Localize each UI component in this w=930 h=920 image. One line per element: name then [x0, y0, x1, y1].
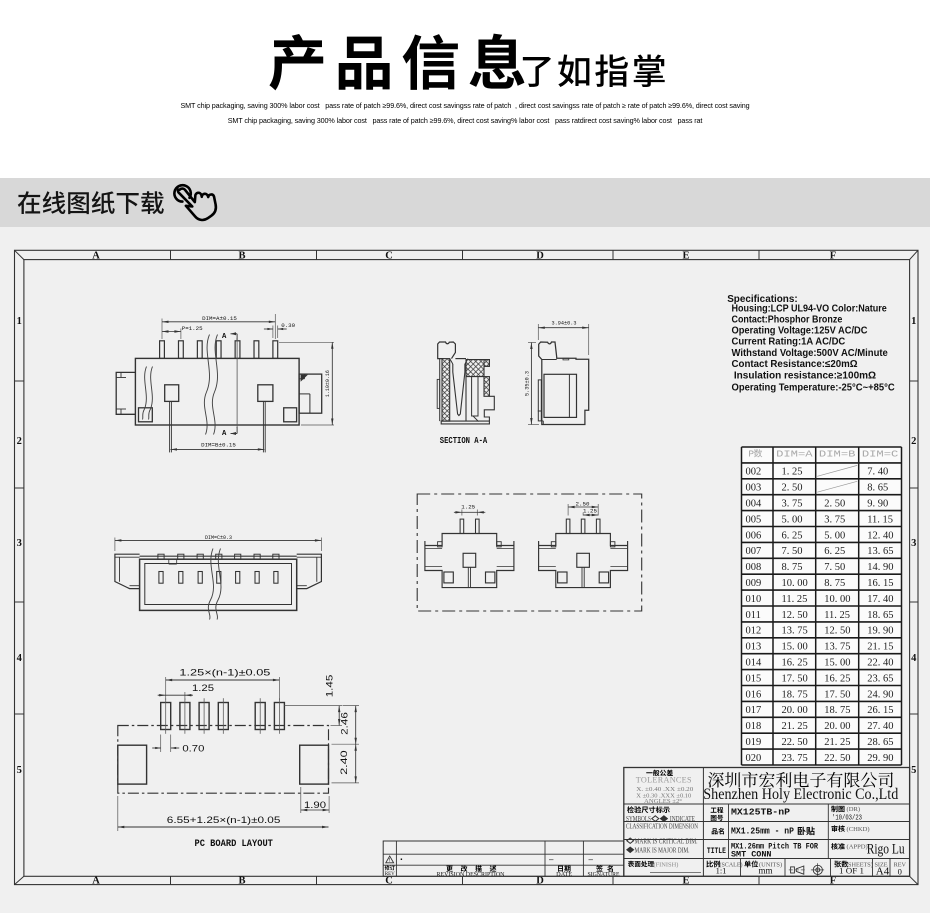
- svg-text:21. 25: 21. 25: [824, 737, 850, 748]
- svg-text:15. 00: 15. 00: [782, 642, 808, 653]
- svg-text:11. 25: 11. 25: [824, 610, 850, 621]
- svg-text:002: 002: [746, 467, 762, 478]
- svg-text:2: 2: [911, 436, 916, 447]
- svg-text:009: 009: [746, 578, 762, 589]
- svg-text:3: 3: [911, 538, 916, 549]
- svg-text:0.30: 0.30: [281, 322, 295, 329]
- svg-text:1: 1: [17, 316, 22, 327]
- svg-text:020: 020: [746, 753, 762, 764]
- svg-text:E: E: [682, 250, 689, 261]
- svg-text:DIM=C: DIM=C: [862, 449, 899, 460]
- svg-text:23. 65: 23. 65: [867, 673, 893, 684]
- svg-text:13. 75: 13. 75: [782, 626, 808, 637]
- svg-text:0.70: 0.70: [182, 744, 204, 754]
- svg-text:A: A: [222, 333, 227, 341]
- svg-text:006: 006: [746, 530, 762, 541]
- svg-text:'10/03/23: '10/03/23: [832, 815, 862, 823]
- svg-text:24. 90: 24. 90: [867, 689, 893, 700]
- svg-text:2. 50: 2. 50: [782, 483, 803, 494]
- svg-text:Current Rating:1A AC/DC: Current Rating:1A AC/DC: [732, 337, 846, 348]
- svg-text:3. 75: 3. 75: [824, 514, 845, 525]
- svg-text:5: 5: [17, 765, 22, 776]
- svg-text:(APPD): (APPD): [847, 844, 868, 851]
- svg-text:SECTION A-A: SECTION A-A: [440, 435, 488, 446]
- svg-text:17. 40: 17. 40: [867, 594, 893, 605]
- svg-text:010: 010: [746, 594, 762, 605]
- svg-text:Shenzhen Holy Electronic Co.,L: Shenzhen Holy Electronic Co.,Ltd: [703, 786, 898, 803]
- svg-text:20. 00: 20. 00: [824, 721, 850, 732]
- svg-text:8. 75: 8. 75: [824, 578, 845, 589]
- svg-text:10. 00: 10. 00: [824, 594, 850, 605]
- svg-text:15. 00: 15. 00: [824, 657, 850, 668]
- svg-text:DIM=C±0.3: DIM=C±0.3: [205, 534, 232, 541]
- svg-text:MX125TB-nP: MX125TB-nP: [731, 806, 790, 817]
- svg-text:16. 15: 16. 15: [867, 578, 893, 589]
- svg-text:18. 65: 18. 65: [867, 610, 893, 621]
- svg-text:19. 90: 19. 90: [867, 626, 893, 637]
- svg-text:TITLE: TITLE: [707, 847, 726, 856]
- svg-text:16. 25: 16. 25: [782, 657, 808, 668]
- svg-text:A: A: [92, 876, 100, 887]
- svg-text:D: D: [536, 250, 544, 261]
- svg-text:2: 2: [17, 436, 22, 447]
- svg-text:DIM=A±0.15: DIM=A±0.15: [202, 315, 237, 322]
- svg-text:DIM=B: DIM=B: [819, 449, 856, 460]
- svg-text:9. 90: 9. 90: [867, 498, 888, 509]
- svg-text:003: 003: [746, 483, 762, 494]
- svg-text:6.55+1.25×(n-1)±0.05: 6.55+1.25×(n-1)±0.05: [167, 815, 281, 825]
- svg-text:F: F: [830, 876, 836, 887]
- svg-text:005: 005: [746, 514, 762, 525]
- svg-text:(CHKD): (CHKD): [847, 826, 870, 833]
- svg-text:015: 015: [746, 673, 762, 684]
- svg-text:A4: A4: [876, 866, 890, 878]
- svg-text:C: C: [385, 250, 393, 261]
- svg-text:7. 50: 7. 50: [782, 546, 803, 557]
- svg-text:B: B: [238, 250, 245, 261]
- svg-text:1.10±0.16: 1.10±0.16: [324, 370, 331, 397]
- svg-text:18. 75: 18. 75: [782, 689, 808, 700]
- svg-text:5. 00: 5. 00: [824, 530, 845, 541]
- svg-text:21. 25: 21. 25: [782, 721, 808, 732]
- svg-text:12. 50: 12. 50: [824, 626, 850, 637]
- svg-text:CLASSIFICATION DIMENSION: CLASSIFICATION DIMENSION: [626, 821, 698, 830]
- svg-text:Rigo Lu: Rigo Lu: [867, 841, 905, 857]
- svg-text:MARK IS MAJOR DIM.: MARK IS MAJOR DIM.: [635, 845, 690, 854]
- svg-text:12. 50: 12. 50: [782, 610, 808, 621]
- svg-text:Housing:LCP UL94-VO Color:Natu: Housing:LCP UL94-VO Color:Nature: [732, 303, 888, 314]
- svg-text:017: 017: [746, 705, 762, 716]
- svg-text:12. 40: 12. 40: [867, 530, 893, 541]
- svg-text:1.25: 1.25: [192, 683, 214, 693]
- svg-text:28. 65: 28. 65: [867, 737, 893, 748]
- svg-text:22. 50: 22. 50: [782, 737, 808, 748]
- svg-text:1.45: 1.45: [325, 675, 335, 698]
- svg-text:21. 15: 21. 15: [867, 642, 893, 653]
- svg-text:6. 25: 6. 25: [782, 530, 803, 541]
- svg-text:23. 75: 23. 75: [782, 753, 808, 764]
- svg-text:014: 014: [746, 657, 763, 668]
- svg-text:·: ·: [400, 855, 403, 866]
- svg-text:Operating Voltage:125V AC/DC: Operating Voltage:125V AC/DC: [732, 326, 868, 337]
- svg-text:3. 75: 3. 75: [782, 498, 803, 509]
- svg-text:(FINISH): (FINISH): [654, 861, 679, 868]
- svg-text:SMT CONN: SMT CONN: [731, 850, 772, 859]
- svg-text:(DR): (DR): [847, 806, 861, 813]
- svg-text:7. 50: 7. 50: [824, 562, 845, 573]
- svg-text:3.94±0.3: 3.94±0.3: [552, 320, 577, 327]
- svg-text:22. 40: 22. 40: [867, 657, 893, 668]
- svg-text:1:1: 1:1: [716, 865, 727, 875]
- svg-text:6. 25: 6. 25: [824, 546, 845, 557]
- svg-text:Insulation resistance:≥100mΩ: Insulation resistance:≥100mΩ: [734, 371, 876, 382]
- svg-text:013: 013: [746, 642, 762, 653]
- svg-text:5.35±0.3: 5.35±0.3: [524, 371, 531, 396]
- svg-text:DATE: DATE: [556, 872, 572, 878]
- svg-text:016: 016: [746, 689, 762, 700]
- svg-text:Contact Resistance:≤20mΩ: Contact Resistance:≤20mΩ: [732, 359, 858, 370]
- svg-text:3: 3: [17, 538, 22, 549]
- svg-text:P=1.25: P=1.25: [182, 325, 203, 332]
- svg-text:008: 008: [746, 562, 762, 573]
- svg-text:11. 25: 11. 25: [782, 594, 808, 605]
- svg-text:MARK IS CRITICAL DIM.: MARK IS CRITICAL DIM.: [635, 836, 698, 845]
- svg-text:14. 90: 14. 90: [867, 562, 893, 573]
- svg-text:5. 00: 5. 00: [782, 514, 803, 525]
- svg-text:REV: REV: [385, 871, 395, 877]
- svg-text:22. 50: 22. 50: [824, 753, 850, 764]
- svg-text:REVISION DESCRIPTION: REVISION DESCRIPTION: [437, 872, 506, 878]
- svg-text:16. 25: 16. 25: [824, 673, 850, 684]
- svg-text:1.90: 1.90: [304, 800, 326, 810]
- svg-text:E: E: [682, 876, 689, 887]
- svg-text:29. 90: 29. 90: [867, 753, 893, 764]
- svg-text:1.25: 1.25: [583, 508, 597, 515]
- svg-text:C: C: [385, 876, 393, 887]
- svg-text:4: 4: [17, 653, 23, 664]
- svg-text:17. 50: 17. 50: [824, 689, 850, 700]
- svg-text:2.46: 2.46: [340, 712, 350, 735]
- svg-text:PC BOARD LAYOUT: PC BOARD LAYOUT: [195, 839, 273, 850]
- svg-text:007: 007: [746, 546, 762, 557]
- svg-text:2.50: 2.50: [576, 501, 590, 508]
- svg-text:DIM=A: DIM=A: [776, 449, 813, 460]
- svg-text:–: –: [549, 855, 554, 864]
- svg-text:–: –: [589, 855, 594, 864]
- svg-text:012: 012: [746, 626, 762, 637]
- svg-text:8. 75: 8. 75: [782, 562, 803, 573]
- svg-text:ANGLES ±2°: ANGLES ±2°: [644, 798, 683, 805]
- svg-text:1.25×(n-1)±0.05: 1.25×(n-1)±0.05: [179, 668, 270, 678]
- svg-text:018: 018: [746, 721, 762, 732]
- svg-text:004: 004: [746, 498, 763, 509]
- svg-text:DIM=B±0.15: DIM=B±0.15: [201, 441, 236, 448]
- svg-text:8. 65: 8. 65: [867, 483, 888, 494]
- svg-text:20. 00: 20. 00: [782, 705, 808, 716]
- svg-text:Contact:Phosphor Bronze: Contact:Phosphor Bronze: [732, 315, 843, 326]
- svg-text:F: F: [830, 250, 836, 261]
- svg-text:17. 50: 17. 50: [782, 673, 808, 684]
- svg-text:A: A: [92, 250, 100, 261]
- svg-text:B: B: [238, 876, 245, 887]
- svg-text:1. 25: 1. 25: [782, 467, 803, 478]
- svg-text:P: P: [748, 449, 754, 460]
- svg-text:D: D: [536, 876, 544, 887]
- svg-text:Operating Temperature:-25°C~+8: Operating Temperature:-25°C~+85°C: [732, 382, 895, 393]
- svg-text:1: 1: [911, 316, 916, 327]
- svg-text:0: 0: [898, 867, 902, 877]
- svg-text:10. 00: 10. 00: [782, 578, 808, 589]
- svg-text:019: 019: [746, 737, 762, 748]
- svg-text:1.25: 1.25: [461, 504, 475, 511]
- svg-text:011: 011: [746, 610, 761, 621]
- svg-text:A: A: [222, 430, 227, 438]
- svg-text:MX1.25mm - nP: MX1.25mm - nP: [731, 826, 794, 837]
- svg-text:1 OF 1: 1 OF 1: [839, 866, 864, 875]
- svg-text:SIGNATURE: SIGNATURE: [588, 872, 620, 878]
- svg-text:11. 15: 11. 15: [867, 514, 893, 525]
- svg-text:2.40: 2.40: [339, 750, 349, 774]
- svg-text:27. 40: 27. 40: [867, 721, 893, 732]
- svg-text:18. 75: 18. 75: [824, 705, 850, 716]
- svg-text:Withstand Voltage:500V AC/Minu: Withstand Voltage:500V AC/Minute: [732, 348, 889, 359]
- svg-text:26. 15: 26. 15: [867, 705, 893, 716]
- svg-text:7. 40: 7. 40: [867, 467, 888, 478]
- svg-text:mm: mm: [758, 865, 772, 875]
- svg-text:5: 5: [911, 765, 916, 776]
- svg-text:TOLERANCES: TOLERANCES: [636, 776, 692, 785]
- svg-text:13. 75: 13. 75: [824, 642, 850, 653]
- svg-text:2. 50: 2. 50: [824, 498, 845, 509]
- svg-text:4: 4: [911, 653, 917, 664]
- svg-text:13. 65: 13. 65: [867, 546, 893, 557]
